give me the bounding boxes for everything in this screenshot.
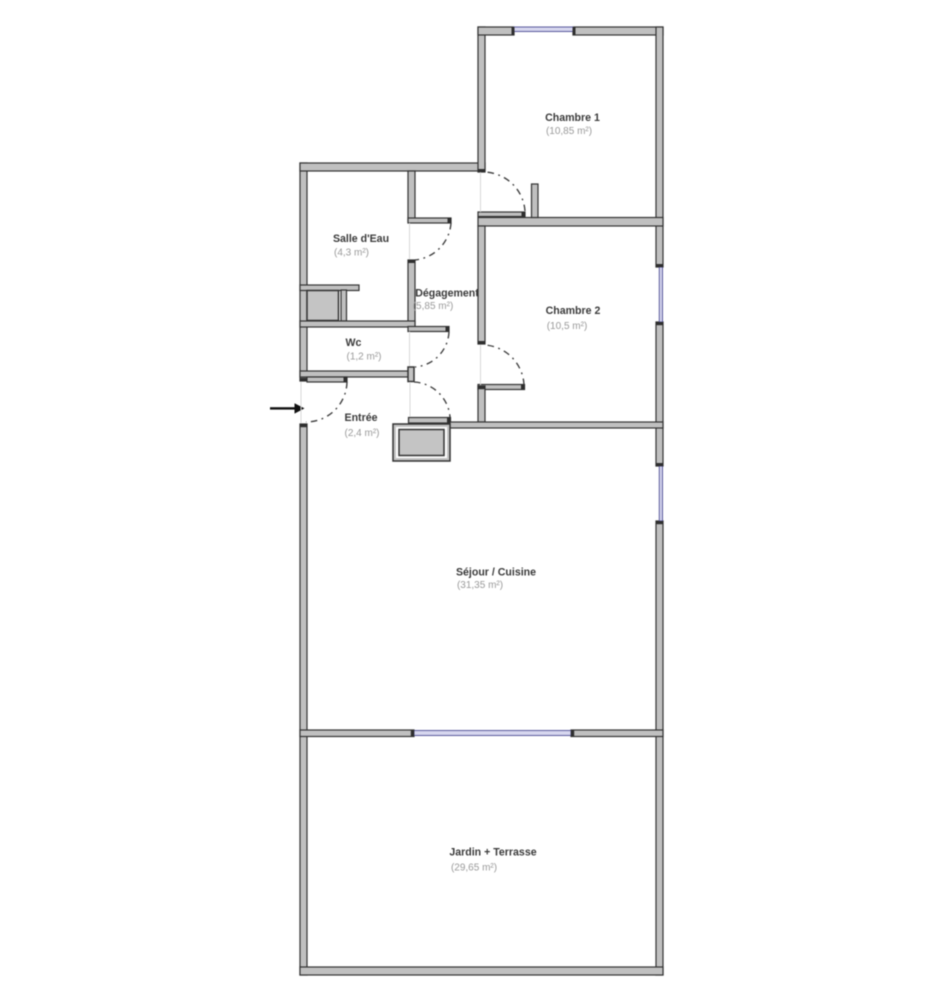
svg-text:(10,5 m²): (10,5 m²) bbox=[547, 321, 588, 332]
svg-text:(5,85 m²): (5,85 m²) bbox=[413, 301, 454, 312]
svg-text:Dégagement: Dégagement bbox=[415, 288, 479, 300]
svg-text:(1,2 m²): (1,2 m²) bbox=[347, 352, 382, 363]
svg-text:(29,65 m²): (29,65 m²) bbox=[451, 863, 497, 874]
svg-text:(10,85 m²): (10,85 m²) bbox=[546, 126, 592, 137]
svg-text:(2,4 m²): (2,4 m²) bbox=[345, 428, 380, 439]
svg-text:(31,35 m²): (31,35 m²) bbox=[457, 580, 503, 591]
svg-text:Jardin + Terrasse: Jardin + Terrasse bbox=[449, 847, 536, 859]
svg-text:(4,3 m²): (4,3 m²) bbox=[334, 248, 369, 259]
svg-text:Salle d'Eau: Salle d'Eau bbox=[333, 233, 389, 245]
svg-text:Chambre 1: Chambre 1 bbox=[545, 112, 600, 124]
svg-text:Wc: Wc bbox=[346, 337, 362, 349]
svg-text:Chambre 2: Chambre 2 bbox=[546, 305, 601, 317]
svg-text:Entrée: Entrée bbox=[345, 412, 378, 424]
svg-text:Séjour / Cuisine: Séjour / Cuisine bbox=[456, 567, 536, 579]
